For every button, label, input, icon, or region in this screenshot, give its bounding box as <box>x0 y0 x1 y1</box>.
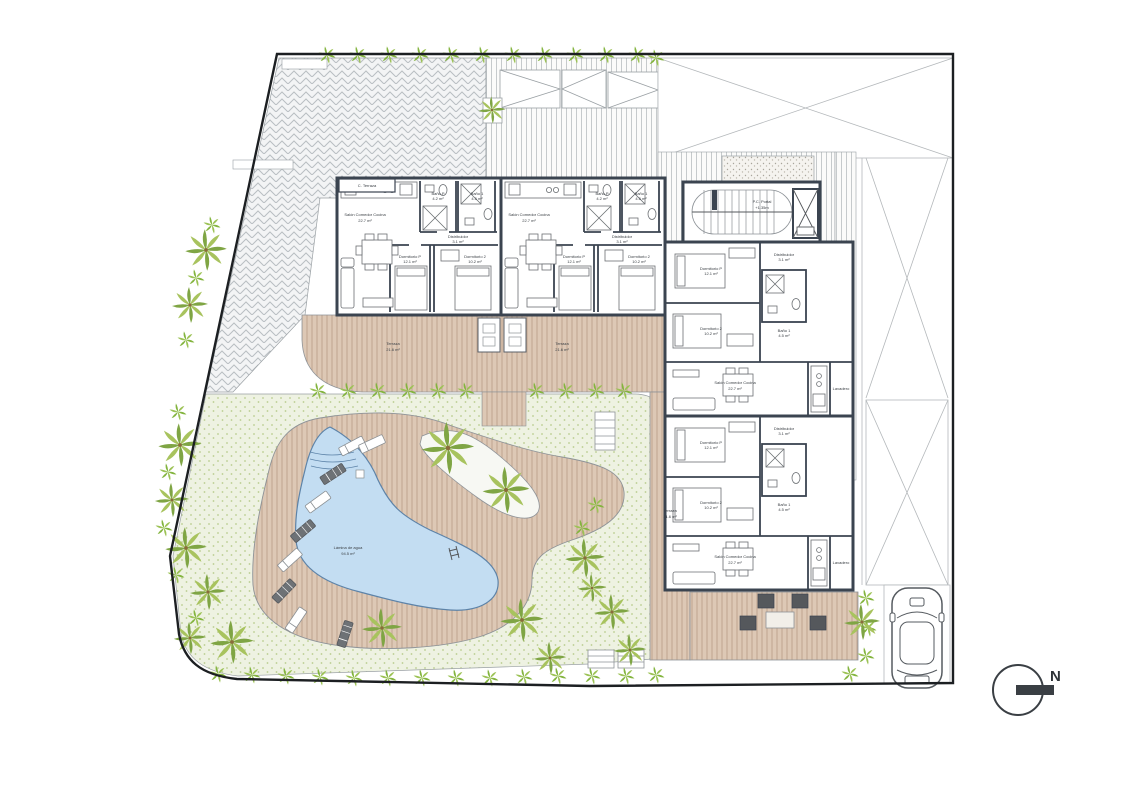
stairwell-block: P.C. Portal +1.35m <box>683 182 820 242</box>
room-area-salon: 22.7 m² <box>358 218 372 223</box>
room-label-salon: Salón Comedor Cocina <box>714 380 756 385</box>
portal-level-label: +1.35m <box>755 205 769 210</box>
kitchen-counter <box>811 366 827 412</box>
planter-box <box>504 318 526 352</box>
skylight-icon <box>562 70 606 108</box>
pool-label: Lámina de agua <box>334 545 363 550</box>
room-area-banop: 4.2 m² <box>432 196 444 201</box>
bed <box>395 266 427 310</box>
room-area-dormp: 12.1 m² <box>403 259 417 264</box>
apartment-unit <box>501 178 665 315</box>
deck-area-terraza: 21.6 m² <box>386 347 400 352</box>
skylight-icon <box>500 70 560 108</box>
room-label-salon: Salón Comedor Cocina <box>344 212 386 217</box>
apartment-unit <box>665 416 853 590</box>
stairs-icon <box>692 190 792 234</box>
portal-label: P.C. Portal <box>753 199 772 204</box>
room-area-distribuidor: 3.1 m² <box>778 257 790 262</box>
fence-line <box>233 160 293 169</box>
north-label: N <box>1050 668 1061 685</box>
room-area-bano1: 4.5 m² <box>778 333 790 338</box>
deck-area-terraza: 21.6 m² <box>555 347 569 352</box>
terrace-table <box>766 612 794 628</box>
deck-area-terraza: 21.6 m² <box>663 514 677 519</box>
apartment-unit: Salón Comedor Cocina 22.7 m² Baño P 4.2 … <box>337 178 501 315</box>
skylight-icon <box>608 72 658 108</box>
room-area-dormp: 12.1 m² <box>704 271 718 276</box>
gravel-bed <box>722 156 814 182</box>
planter-box <box>478 318 500 352</box>
elevator-icon <box>793 189 818 238</box>
deck-connector <box>482 392 526 426</box>
car <box>890 588 944 688</box>
apartment-unit: Dormitorio P 12.1 m² Dormitorio 2 10.2 m… <box>665 242 853 416</box>
pool-area-label: 94.5 m² <box>341 551 355 556</box>
deck-label-terraza: Terraza <box>555 341 569 346</box>
room-label-lavadero: Lavadero <box>833 386 850 391</box>
site-plan-drawing: Lámina de agua 94.5 m² <box>0 0 1132 800</box>
deck-label-terraza: Terraza <box>663 508 677 513</box>
terrace-store-label: C. Terraza <box>358 183 377 188</box>
room-area-salon: 22.7 m² <box>728 386 742 391</box>
roof-terrace-strip <box>479 58 659 178</box>
room-area-bano1: 4.5 m² <box>471 196 483 201</box>
north-bar <box>1016 685 1054 695</box>
deck-label-terraza: Terraza <box>386 341 400 346</box>
terrace-store: C. Terraza <box>339 179 395 192</box>
room-area-dorm2: 10.2 m² <box>468 259 482 264</box>
north-arrow: N <box>993 665 1061 715</box>
site-plan-canvas: Lámina de agua 94.5 m² <box>0 0 1132 800</box>
room-area-dorm2: 10.2 m² <box>704 331 718 336</box>
parking-space <box>866 400 948 585</box>
boundary-notch <box>282 59 327 69</box>
room-area-distribuidor: 3.1 m² <box>452 239 464 244</box>
side-table <box>356 470 364 478</box>
